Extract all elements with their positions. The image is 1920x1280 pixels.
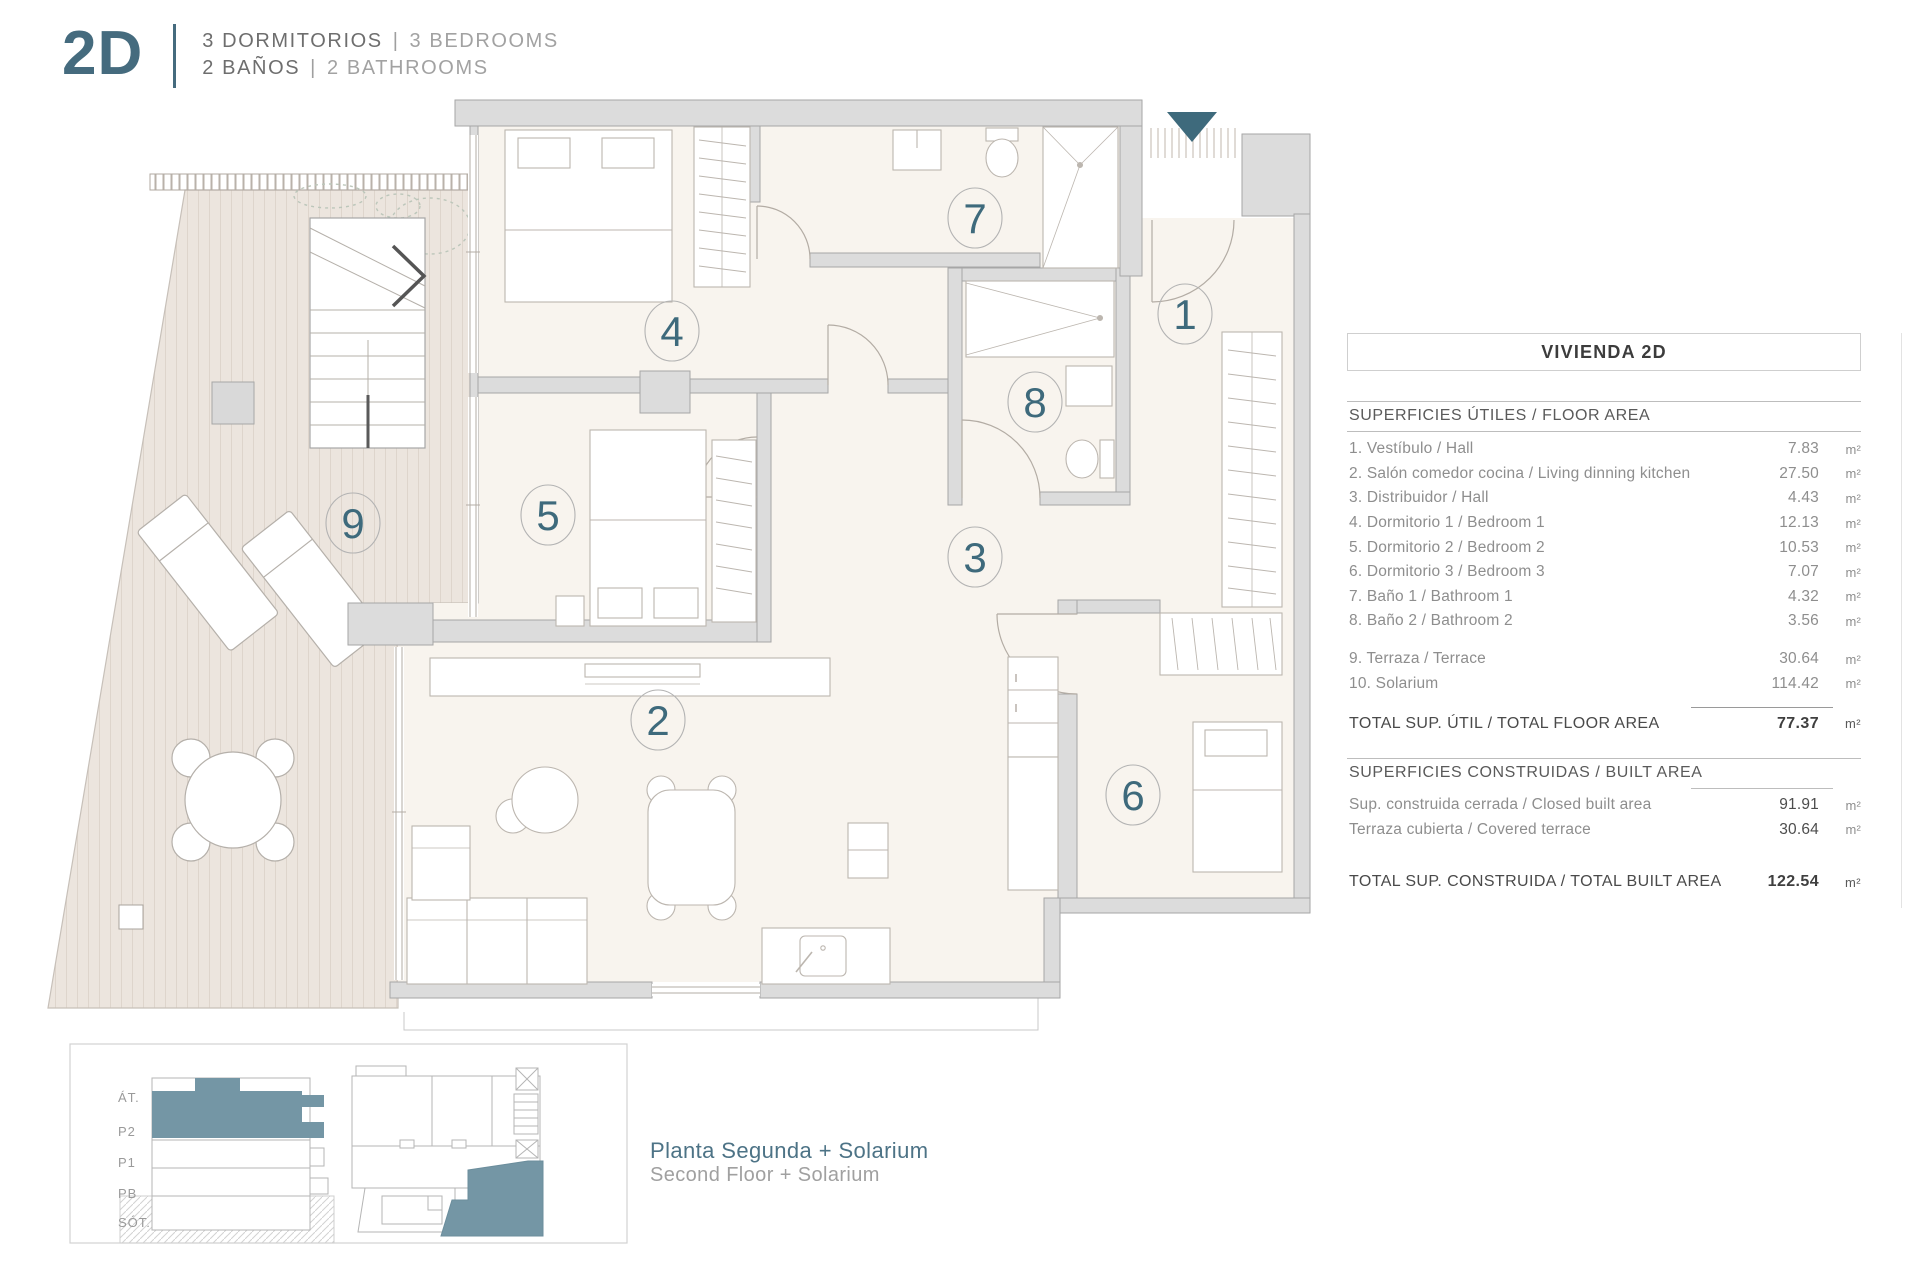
area-row-val: 10.53 <box>1753 539 1819 557</box>
area-row-val: 4.43 <box>1753 489 1819 507</box>
terrace-planter <box>212 382 254 424</box>
area-row: 5. Dormitorio 2 / Bedroom 210.53m² <box>1347 535 1861 560</box>
wall-bed6-top <box>1077 600 1160 613</box>
bath7-toilet <box>986 128 1018 177</box>
area-row-unit: m² <box>1819 589 1861 604</box>
room-number-label: 3 <box>963 534 986 581</box>
area-row-unit: m² <box>1819 442 1861 457</box>
level-label: P1 <box>118 1155 136 1170</box>
area-row: Sup. construida cerrada / Closed built a… <box>1347 793 1861 818</box>
bedroom6-closet <box>1160 613 1282 675</box>
wall-bed4-bed5 <box>478 377 640 393</box>
level-label: P2 <box>118 1124 136 1139</box>
wall-wing-bottom <box>1058 898 1310 913</box>
bath8-shower <box>966 281 1114 357</box>
table-title: VIVIENDA 2D <box>1347 333 1861 371</box>
wall-bed6-left <box>1058 694 1077 898</box>
area-row-val: 30.64 <box>1753 821 1819 839</box>
area-row-lbl: 2. Salón comedor cocina / Living dinning… <box>1347 465 1753 483</box>
total-built-area-value: 122.54 <box>1753 873 1819 891</box>
area-row-val: 3.56 <box>1753 612 1819 630</box>
bedroom4-bed <box>505 130 672 302</box>
area-row-unit: m² <box>1819 516 1861 531</box>
window-living-terrace <box>392 647 406 980</box>
wall-top <box>455 100 1142 126</box>
area-row-unit: m² <box>1819 822 1861 837</box>
area-row-val: 12.13 <box>1753 514 1819 532</box>
area-row-lbl: Sup. construida cerrada / Closed built a… <box>1347 796 1753 814</box>
stairs <box>310 218 425 448</box>
area-row: 6. Dormitorio 3 / Bedroom 37.07m² <box>1347 560 1861 585</box>
key-plan-core <box>514 1068 538 1158</box>
area-row-lbl: 9. Terraza / Terrace <box>1347 650 1753 668</box>
hall-wardrobe <box>1222 332 1282 607</box>
area-row-lbl: 8. Baño 2 / Bathroom 2 <box>1347 612 1753 630</box>
area-row-lbl: 7. Baño 1 / Bathroom 1 <box>1347 588 1753 606</box>
area-row-lbl: 5. Dormitorio 2 / Bedroom 2 <box>1347 539 1753 557</box>
wall-hall-left <box>1120 126 1142 276</box>
bath7-shower <box>1043 127 1118 268</box>
area-row-val: 7.07 <box>1753 563 1819 581</box>
area-row: 9. Terraza / Terrace30.64m² <box>1347 647 1861 672</box>
area-row-unit: m² <box>1819 540 1861 555</box>
room-number-label: 4 <box>660 308 683 355</box>
area-row-unit: m² <box>1819 491 1861 506</box>
area-row: 10. Solarium114.42m² <box>1347 671 1861 696</box>
level-label: SÓT. <box>118 1215 151 1230</box>
wall-pillar <box>640 371 690 413</box>
area-row-unit: m² <box>1819 652 1861 667</box>
area-row-val: 30.64 <box>1753 650 1819 668</box>
total-built-area-label: TOTAL SUP. CONSTRUIDA / TOTAL BUILT AREA <box>1347 873 1753 891</box>
wall-bath7-bottom <box>810 253 1040 267</box>
area-row-lbl: 6. Dormitorio 3 / Bedroom 3 <box>1347 563 1753 581</box>
room-number-label: 1 <box>1173 291 1196 338</box>
unit-m2: m² <box>1819 875 1861 890</box>
floor-area-rows: 1. Vestíbulo / Hall7.83m²2. Salón comedo… <box>1347 437 1861 634</box>
area-row: 2. Salón comedor cocina / Living dinning… <box>1347 462 1861 487</box>
room-number-label: 8 <box>1023 379 1046 426</box>
bedroom5-wardrobe <box>712 440 756 622</box>
area-row: 8. Baño 2 / Bathroom 23.56m² <box>1347 609 1861 634</box>
bedroom4-wardrobe <box>694 127 750 287</box>
wall-bath8-left <box>948 268 962 505</box>
area-row-unit: m² <box>1819 798 1861 813</box>
built-area-heading: SUPERFICIES CONSTRUIDAS / BUILT AREA <box>1347 758 1861 788</box>
wall-bed5-right <box>757 393 771 642</box>
total-floor-area-row: TOTAL SUP. ÚTIL / TOTAL FLOOR AREA 77.37… <box>1347 708 1861 740</box>
area-row-unit: m² <box>1819 676 1861 691</box>
floorplan-sheet: { "header": { "unit": "2D", "rooms_es": … <box>0 0 1920 1280</box>
key-diagram: ÁT.P2P1PBSÓT. <box>70 1044 627 1243</box>
area-row-lbl: 1. Vestíbulo / Hall <box>1347 440 1753 458</box>
terrace-light <box>119 905 143 929</box>
area-row-unit: m² <box>1819 614 1861 629</box>
room-number-label: 6 <box>1121 772 1144 819</box>
area-table: VIVIENDA 2D SUPERFICIES ÚTILES / FLOOR A… <box>1347 333 1861 898</box>
area-row: Terraza cubierta / Covered terrace30.64m… <box>1347 818 1861 843</box>
floor-area-extra-rows: 9. Terraza / Terrace30.64m²10. Solarium1… <box>1347 647 1861 696</box>
sheet-edge-line <box>1901 333 1902 908</box>
area-row-lbl: 10. Solarium <box>1347 675 1753 693</box>
wall-bed6-stub <box>1058 600 1077 614</box>
area-row-val: 114.42 <box>1753 675 1819 693</box>
area-row: 3. Distribuidor / Hall4.43m² <box>1347 486 1861 511</box>
wall-closet4 <box>750 126 760 202</box>
room-number-label: 5 <box>536 492 559 539</box>
wall-junction-block <box>348 603 433 645</box>
floor-area-heading: SUPERFICIES ÚTILES / FLOOR AREA <box>1347 401 1861 432</box>
window-bedroom5 <box>466 397 480 617</box>
wall-entry-side <box>1242 134 1310 216</box>
total-floor-area-label: TOTAL SUP. ÚTIL / TOTAL FLOOR AREA <box>1347 715 1753 733</box>
area-row-val: 4.32 <box>1753 588 1819 606</box>
wall-bath8-bottom <box>1040 492 1130 505</box>
caption-es: Planta Segunda + Solarium <box>650 1138 928 1163</box>
bath8-toilet <box>1066 440 1114 478</box>
bedroom6-bed <box>1193 722 1282 872</box>
area-row-lbl: 4. Dormitorio 1 / Bedroom 1 <box>1347 514 1753 532</box>
room-number-label: 9 <box>341 500 364 547</box>
plan-caption: Planta Segunda + Solarium Second Floor +… <box>650 1138 928 1188</box>
dining-set <box>647 776 736 920</box>
area-row: 1. Vestíbulo / Hall7.83m² <box>1347 437 1861 462</box>
level-label: ÁT. <box>118 1090 140 1105</box>
total-built-area-row: TOTAL SUP. CONSTRUIDA / TOTAL BUILT AREA… <box>1347 866 1861 898</box>
area-row-lbl: 3. Distribuidor / Hall <box>1347 489 1753 507</box>
key-plan <box>352 1066 543 1236</box>
room-number-label: 7 <box>963 195 986 242</box>
wall-right <box>1294 214 1310 912</box>
area-row-lbl: Terraza cubierta / Covered terrace <box>1347 821 1753 839</box>
terrace-railing <box>150 174 470 190</box>
area-row-val: 7.83 <box>1753 440 1819 458</box>
area-row: 4. Dormitorio 1 / Bedroom 112.13m² <box>1347 511 1861 536</box>
area-row-val: 27.50 <box>1753 465 1819 483</box>
wall-bed4-dist <box>690 379 828 393</box>
total-floor-area-value: 77.37 <box>1753 715 1819 733</box>
area-row-unit: m² <box>1819 466 1861 481</box>
bath8-sink <box>1066 366 1112 406</box>
caption-en: Second Floor + Solarium <box>650 1163 928 1188</box>
window-living-bottom <box>652 984 760 996</box>
bath7-sink <box>893 130 941 170</box>
area-row: 7. Baño 1 / Bathroom 14.32m² <box>1347 585 1861 610</box>
room-number-label: 2 <box>646 697 669 744</box>
wall-bath8-top <box>948 268 1130 281</box>
wall-bath8-right <box>1116 268 1130 505</box>
area-row-val: 91.91 <box>1753 796 1819 814</box>
tv-console <box>430 658 830 696</box>
window-bedroom4 <box>466 135 480 373</box>
unit-m2: m² <box>1819 716 1861 731</box>
area-row-unit: m² <box>1819 565 1861 580</box>
level-label: PB <box>118 1186 137 1201</box>
built-area-rows: Sup. construida cerrada / Closed built a… <box>1347 793 1861 842</box>
terrace-table-set <box>172 739 294 861</box>
